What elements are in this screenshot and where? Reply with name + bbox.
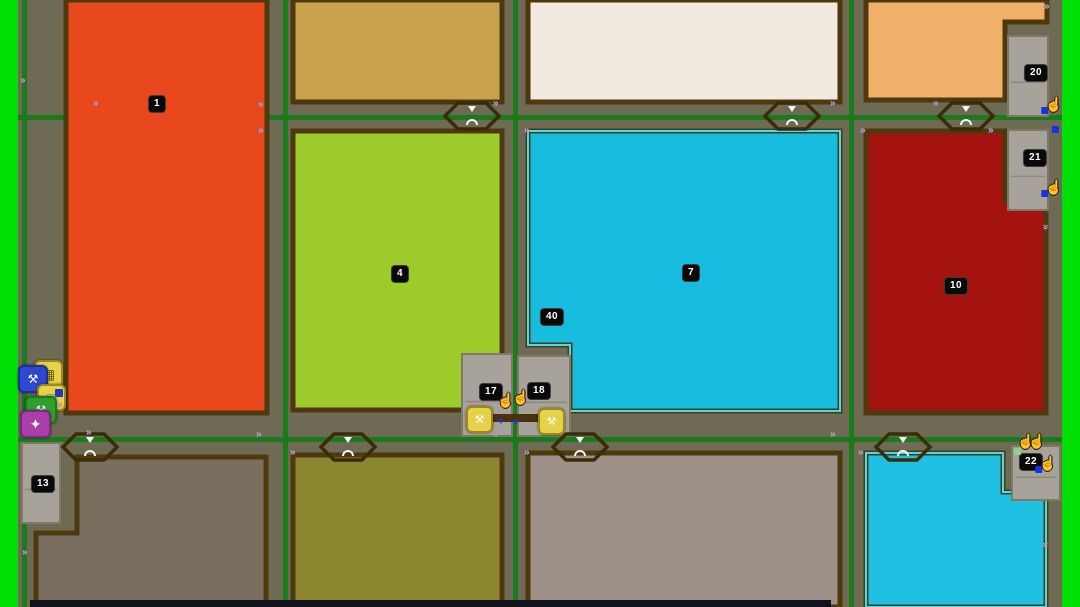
road-line-vertical-3 xyxy=(849,0,854,607)
field-1[interactable] xyxy=(66,0,267,413)
field-gray-bottom[interactable] xyxy=(528,453,840,607)
field-cream-top[interactable] xyxy=(528,0,840,102)
left-green-edge xyxy=(0,0,18,607)
field-7[interactable] xyxy=(528,131,840,411)
right-green-edge xyxy=(1062,0,1080,607)
plot-17[interactable] xyxy=(462,354,512,436)
plot-13[interactable] xyxy=(22,443,60,523)
path-segment xyxy=(476,414,550,422)
field-tan-top[interactable] xyxy=(293,0,502,102)
map-layers xyxy=(0,0,1080,607)
road-line-vertical-2 xyxy=(513,0,518,607)
map-viewport: 1474010131718202122▦⚒▤⚒✦⚒⚒☝☝☝☝☝☝☝➤➤»»»»»… xyxy=(0,0,1080,607)
field-olive-bottom[interactable] xyxy=(293,455,502,607)
bottom-bar xyxy=(30,600,831,607)
road-line-vertical-1 xyxy=(283,0,288,607)
plot-20[interactable] xyxy=(1008,36,1048,116)
plot-21[interactable] xyxy=(1008,130,1048,210)
plot-18[interactable] xyxy=(518,356,570,436)
plot-22[interactable] xyxy=(1012,446,1060,500)
